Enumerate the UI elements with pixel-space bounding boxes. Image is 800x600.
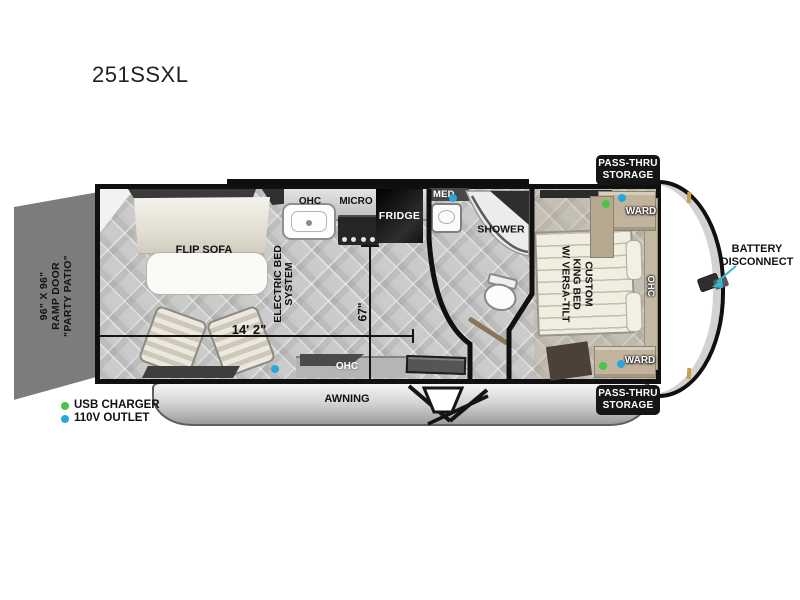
model-name: 251SSXL — [92, 62, 188, 88]
floorplan-page: 251SSXL 96" X 96" RAMP DOOR "PARTY PATIO… — [0, 0, 800, 600]
king-bed-label: CUSTOM KING BED W/ VERSA-TILT — [559, 246, 594, 323]
ward-rear-label: WARD — [626, 207, 657, 218]
shower-label: SHOWER — [477, 224, 524, 235]
battery-disconnect-label: BATTERY DISCONNECT — [721, 243, 794, 269]
awning-label: AWNING — [324, 394, 369, 406]
usb-charger-dot — [599, 362, 607, 370]
outlet-110v-dot — [449, 194, 457, 202]
entry-step-pad — [424, 388, 462, 412]
outlet-110v-legend-dot — [61, 415, 69, 423]
entry-ohc-label: OHC — [336, 362, 358, 373]
outlet-110v-dot — [271, 365, 279, 373]
usb-charger-legend-dot — [61, 402, 69, 410]
legend-110v-outlet: 110V OUTLET — [61, 412, 160, 425]
electric-bed-system-label: ELECTRIC BED SYSTEM — [273, 245, 295, 323]
floorplan-walls-overlay — [0, 0, 800, 600]
flip-sofa-label: FLIP SOFA — [176, 245, 233, 257]
bath-wall-left — [429, 189, 470, 381]
kitchen-ohc-label: OHC — [299, 197, 321, 208]
outlet-110v-dot — [618, 194, 626, 202]
dim-width-label: 67" — [357, 302, 370, 321]
pass-thru-storage-badge-bottom: PASS-THRU STORAGE — [596, 385, 660, 415]
pass-thru-storage-badge-top: PASS-THRU STORAGE — [596, 155, 660, 185]
usb-charger-dot — [602, 200, 610, 208]
dim-length-label: 14' 2" — [232, 323, 267, 337]
micro-label: MICRO — [339, 197, 372, 208]
ward-front-label: WARD — [625, 356, 656, 367]
legend-usb-charger: USB CHARGER — [61, 399, 160, 412]
bedroom-ohc-label: OHC — [645, 275, 655, 296]
legend: USB CHARGER 110V OUTLET — [61, 399, 160, 425]
outlet-110v-dot — [617, 360, 625, 368]
